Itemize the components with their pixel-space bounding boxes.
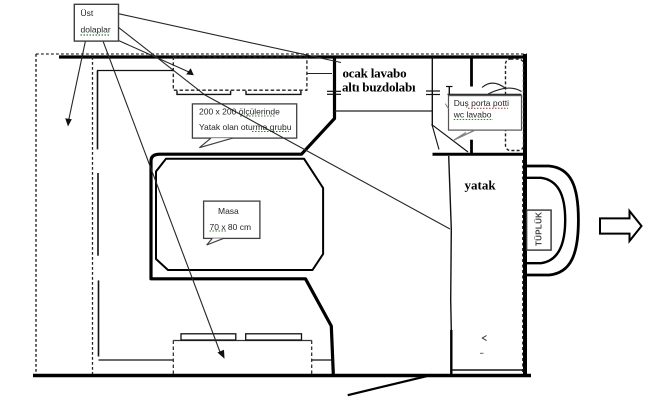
svg-text:wc lavabo: wc lavabo [453, 109, 492, 119]
svg-text:Masa: Masa [218, 206, 239, 216]
svg-text:Üst: Üst [81, 8, 94, 18]
svg-text:dolaplar: dolaplar [81, 25, 111, 35]
svg-text:TÜPLÜK: TÜPLÜK [535, 212, 544, 246]
svg-text:Duş porta potti: Duş porta potti [454, 98, 509, 108]
svg-text:Yatak olan oturma grubu: Yatak olan oturma grubu [199, 122, 292, 132]
svg-text:200 x 200 ölçülerinde: 200 x 200 ölçülerinde [199, 107, 280, 117]
svg-text:altı buzdolabı: altı buzdolabı [342, 80, 416, 95]
svg-text:ocak lavabo: ocak lavabo [343, 66, 407, 81]
svg-text:yatak: yatak [465, 178, 497, 193]
